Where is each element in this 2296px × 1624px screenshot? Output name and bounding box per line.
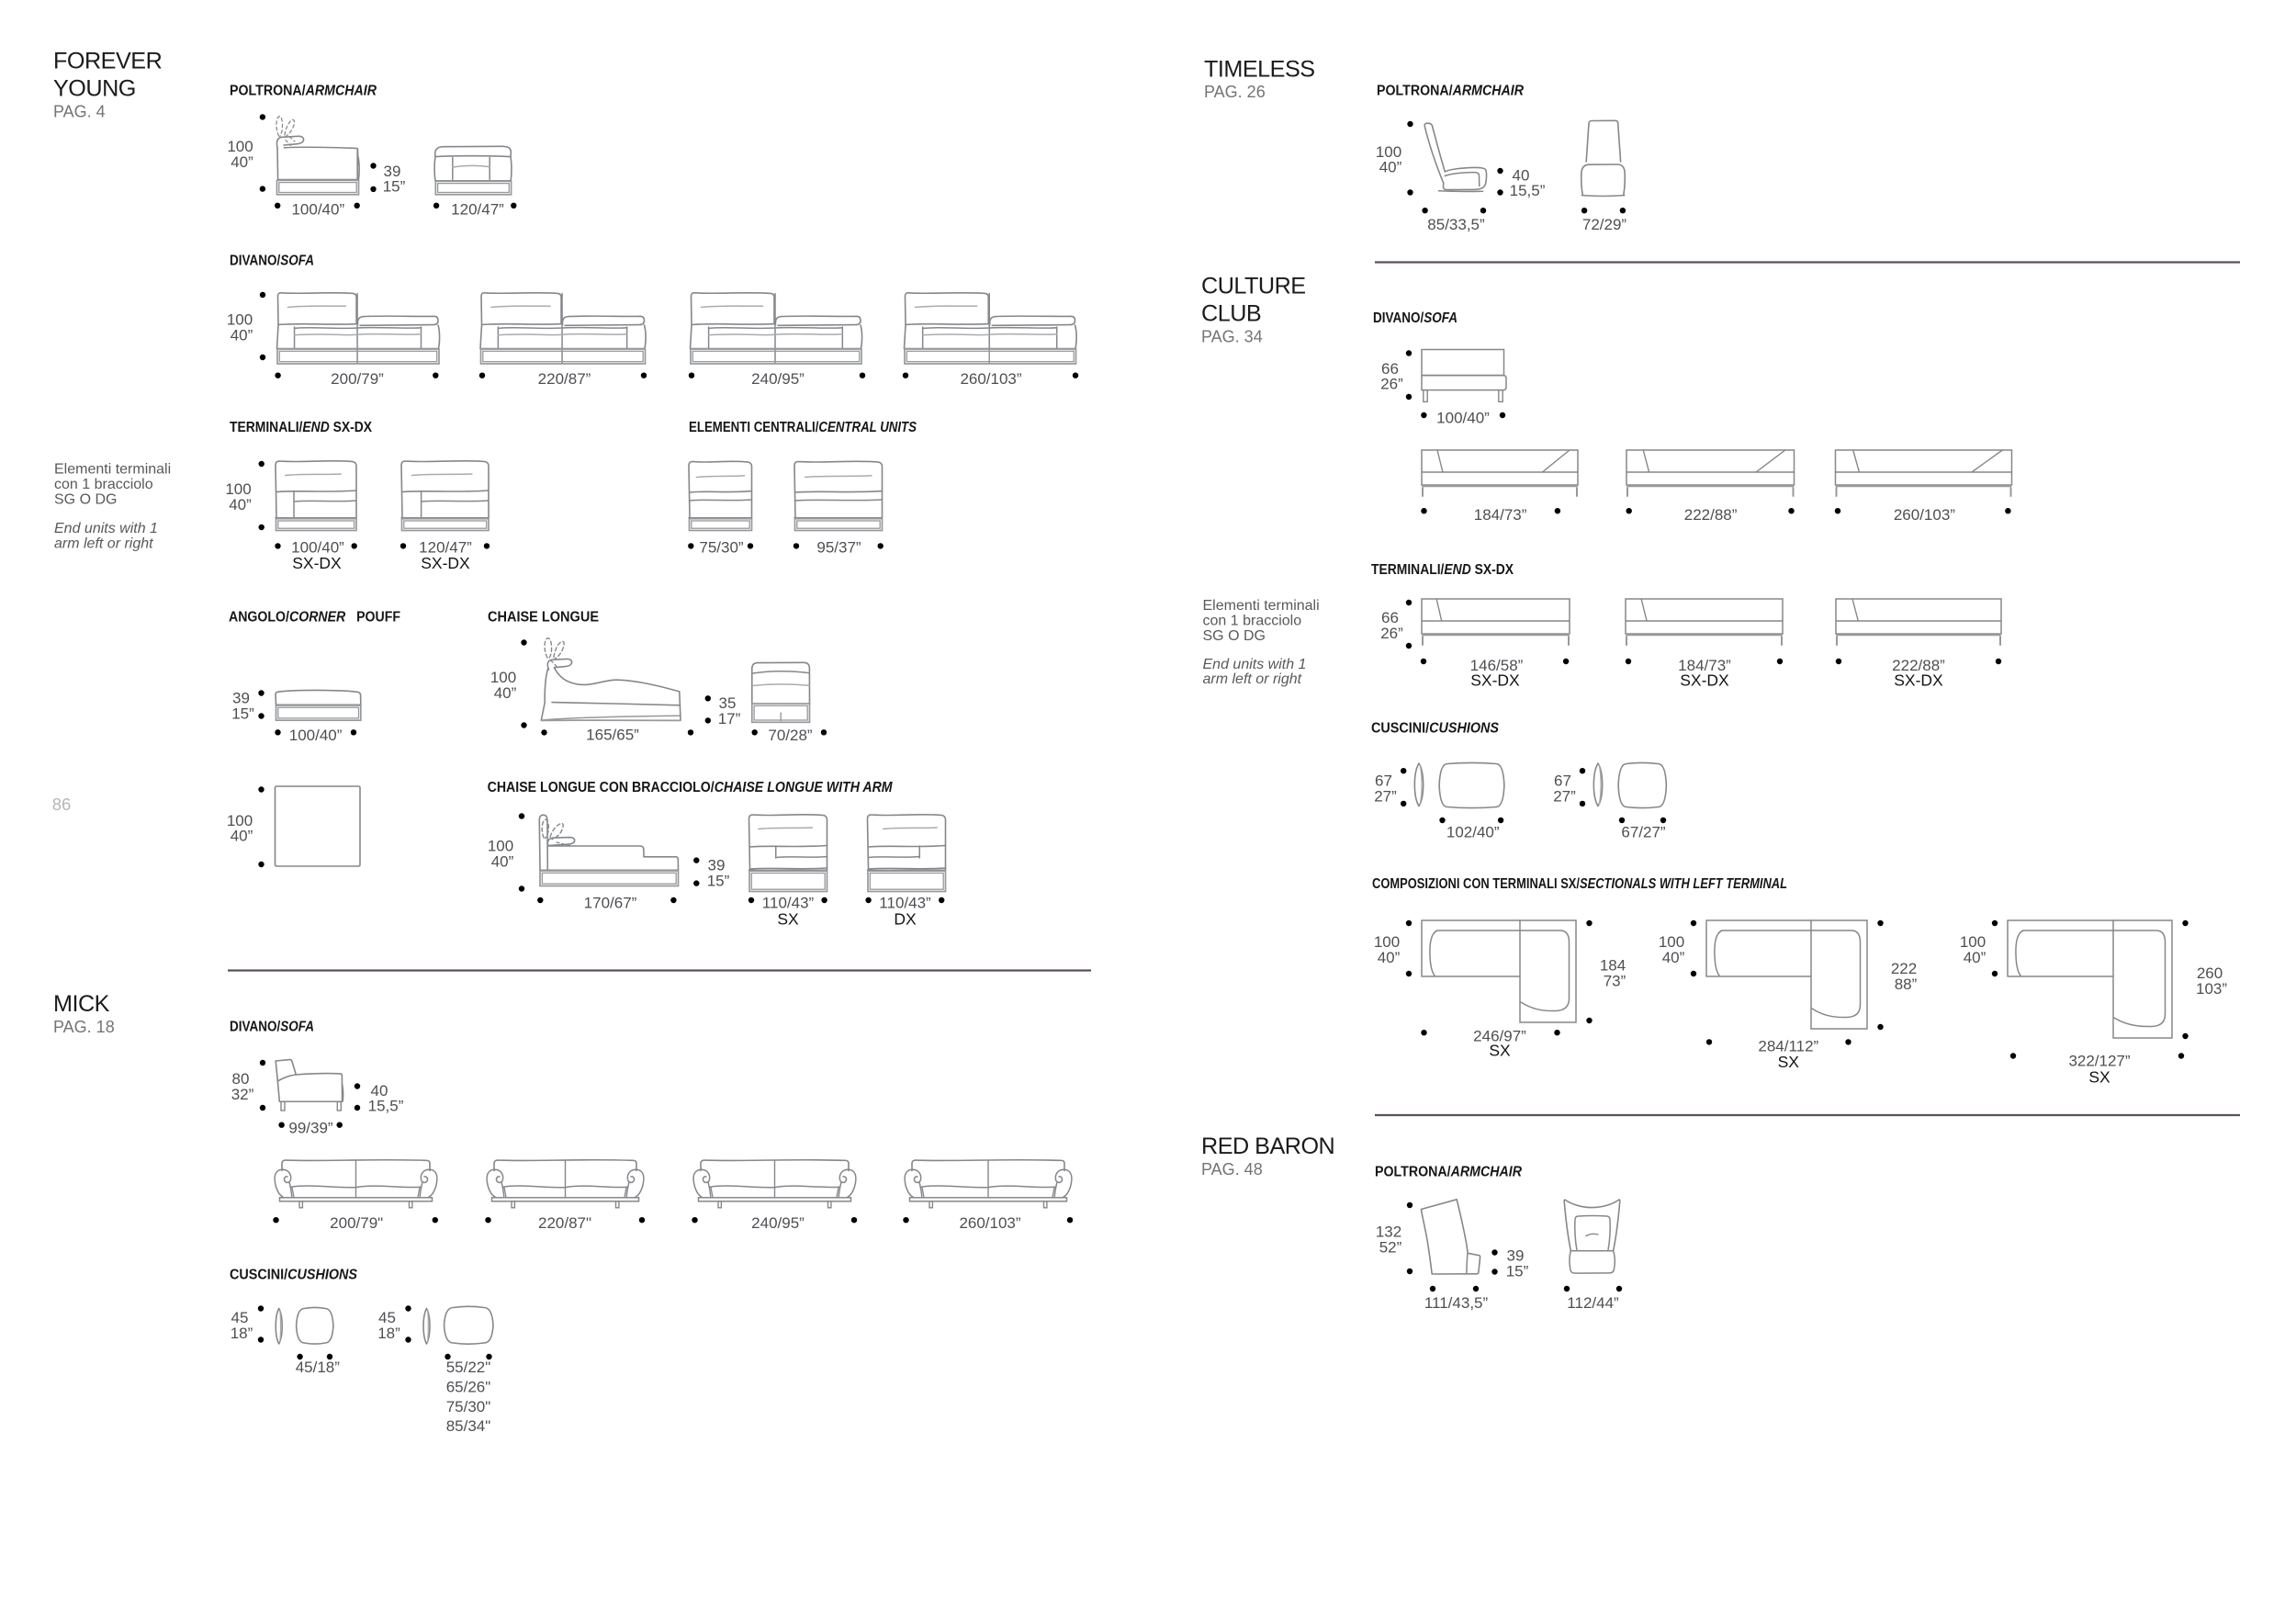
svg-text:POLTRONA/ARMCHAIR: POLTRONA/ARMCHAIR: [1375, 1164, 1522, 1179]
svg-text:260/103”: 260/103”: [959, 1214, 1020, 1232]
svg-text:Elementi terminali: Elementi terminali: [54, 462, 171, 478]
svg-text:40”: 40”: [494, 684, 517, 702]
svg-text:15,5”: 15,5”: [1510, 182, 1546, 199]
svg-text:TERMINALI/END SX-DX: TERMINALI/END SX-DX: [230, 420, 372, 435]
svg-text:TERMINALI/END SX-DX: TERMINALI/END SX-DX: [1371, 562, 1514, 578]
svg-text:DX: DX: [894, 909, 917, 928]
svg-text:72/29”: 72/29”: [1582, 216, 1627, 233]
svg-text:arm left or right: arm left or right: [1203, 671, 1302, 687]
svg-text:ELEMENTI CENTRALI/CENTRAL UNIT: ELEMENTI CENTRALI/CENTRAL UNITS: [689, 420, 917, 435]
svg-text:PAG. 26: PAG. 26: [1204, 83, 1266, 101]
svg-text:YOUNG: YOUNG: [53, 76, 136, 102]
svg-text:27”: 27”: [1553, 787, 1576, 805]
svg-text:55/22": 55/22": [446, 1359, 491, 1376]
svg-text:15”: 15”: [1506, 1262, 1529, 1280]
svg-text:52”: 52”: [1379, 1238, 1402, 1256]
svg-text:Elementi terminali: Elementi terminali: [1203, 598, 1320, 614]
svg-text:184/73”: 184/73”: [1474, 506, 1527, 524]
svg-text:ANGOLO/CORNER POUFF: ANGOLO/CORNER POUFF: [229, 609, 400, 625]
svg-text:18”: 18”: [377, 1325, 400, 1342]
svg-text:75/30”: 75/30”: [699, 539, 744, 557]
svg-text:SX-DX: SX-DX: [1680, 671, 1729, 689]
svg-text:CHAISE LONGUE: CHAISE LONGUE: [488, 609, 599, 625]
svg-text:con 1 bracciolo: con 1 bracciolo: [54, 477, 153, 492]
svg-text:170/67”: 170/67”: [584, 894, 637, 911]
svg-text:75/30": 75/30": [446, 1398, 491, 1415]
svg-text:CUSCINI/CUSHIONS: CUSCINI/CUSHIONS: [1371, 721, 1499, 737]
svg-text:17”: 17”: [718, 710, 741, 727]
svg-text:TIMELESS: TIMELESS: [1204, 57, 1315, 83]
svg-text:SX-DX: SX-DX: [421, 554, 470, 572]
svg-text:SG O DG: SG O DG: [1203, 628, 1266, 644]
svg-text:240/95”: 240/95”: [751, 370, 805, 388]
svg-text:DIVANO/SOFA: DIVANO/SOFA: [230, 254, 314, 269]
svg-text:73”: 73”: [1604, 972, 1626, 989]
svg-text:CLUB: CLUB: [1201, 301, 1261, 327]
svg-text:MICK: MICK: [53, 991, 110, 1017]
svg-text:111/43,5”: 111/43,5”: [1424, 1294, 1489, 1312]
svg-text:SX: SX: [1778, 1053, 1800, 1071]
svg-text:PAG. 34: PAG. 34: [1201, 328, 1263, 346]
svg-text:DIVANO/SOFA: DIVANO/SOFA: [1373, 310, 1458, 326]
svg-text:PAG. 4: PAG. 4: [53, 103, 106, 121]
svg-text:SX: SX: [777, 909, 799, 928]
svg-text:85/34": 85/34": [446, 1417, 491, 1435]
svg-text:26”: 26”: [1380, 625, 1403, 642]
svg-text:DIVANO/SOFA: DIVANO/SOFA: [230, 1019, 314, 1034]
svg-text:220/87": 220/87": [538, 1214, 591, 1232]
svg-text:End units with 1: End units with 1: [1203, 657, 1307, 672]
svg-text:260/103”: 260/103”: [960, 370, 1021, 388]
svg-text:67/27”: 67/27”: [1621, 824, 1666, 841]
svg-text:SX-DX: SX-DX: [1470, 671, 1520, 689]
svg-text:88”: 88”: [1895, 976, 1918, 993]
svg-text:26”: 26”: [1380, 376, 1403, 393]
svg-text:112/44”: 112/44”: [1567, 1294, 1619, 1312]
svg-text:40”: 40”: [491, 852, 514, 870]
svg-text:40”: 40”: [231, 828, 253, 845]
svg-text:SX-DX: SX-DX: [1894, 671, 1943, 689]
svg-text:40”: 40”: [231, 326, 253, 344]
svg-text:70/28”: 70/28”: [768, 727, 813, 744]
svg-text:40”: 40”: [1964, 949, 1986, 966]
svg-text:POLTRONA/ARMCHAIR: POLTRONA/ARMCHAIR: [230, 83, 377, 98]
svg-text:FOREVER: FOREVER: [53, 49, 163, 74]
svg-text:222/88”: 222/88”: [1684, 506, 1738, 524]
svg-text:65/26": 65/26": [446, 1378, 491, 1395]
svg-text:120/47”: 120/47”: [451, 200, 504, 218]
svg-text:40”: 40”: [229, 496, 252, 513]
svg-text:COMPOSIZIONI CON TERMINALI SX/: COMPOSIZIONI CON TERMINALI SX/SECTIONALS…: [1372, 876, 1787, 892]
svg-text:85/33,5”: 85/33,5”: [1427, 216, 1485, 233]
svg-text:40”: 40”: [231, 153, 253, 171]
svg-text:End units with 1: End units with 1: [54, 521, 158, 536]
svg-text:240/95”: 240/95”: [751, 1214, 805, 1232]
svg-text:103”: 103”: [2196, 980, 2227, 998]
svg-text:27”: 27”: [1374, 787, 1397, 805]
svg-text:CULTURE: CULTURE: [1201, 274, 1306, 299]
svg-text:SX: SX: [1489, 1042, 1511, 1060]
svg-text:40”: 40”: [1379, 159, 1402, 176]
svg-text:32”: 32”: [231, 1086, 254, 1103]
svg-text:102/40”: 102/40”: [1446, 824, 1500, 841]
svg-text:100/40”: 100/40”: [289, 727, 343, 744]
svg-text:220/87”: 220/87”: [538, 370, 591, 388]
svg-text:15”: 15”: [383, 178, 406, 196]
svg-text:PAG. 18: PAG. 18: [53, 1018, 115, 1036]
svg-text:SX-DX: SX-DX: [292, 554, 342, 572]
svg-text:POLTRONA/ARMCHAIR: POLTRONA/ARMCHAIR: [1377, 83, 1524, 98]
svg-text:40”: 40”: [1662, 949, 1685, 966]
svg-text:con 1 bracciolo: con 1 bracciolo: [1203, 613, 1302, 628]
svg-text:PAG. 48: PAG. 48: [1201, 1160, 1263, 1179]
svg-text:100/40”: 100/40”: [1436, 410, 1490, 427]
svg-text:99/39”: 99/39”: [288, 1120, 333, 1137]
svg-text:45/18”: 45/18”: [296, 1359, 341, 1376]
svg-text:15”: 15”: [231, 705, 254, 722]
svg-text:15”: 15”: [707, 873, 730, 890]
svg-text:100/40”: 100/40”: [291, 200, 344, 218]
svg-text:200/79”: 200/79”: [331, 370, 384, 388]
svg-text:260/103”: 260/103”: [1894, 506, 1955, 524]
svg-text:15,5”: 15,5”: [368, 1098, 404, 1115]
svg-text:SG O DG: SG O DG: [54, 491, 117, 507]
svg-text:18”: 18”: [231, 1325, 253, 1342]
svg-text:165/65”: 165/65”: [586, 727, 639, 744]
svg-text:arm left or right: arm left or right: [54, 536, 153, 551]
svg-text:CHAISE LONGUE CON BRACCIOLO/CH: CHAISE LONGUE CON BRACCIOLO/CHAISE LONGU…: [488, 780, 894, 795]
svg-text:86: 86: [52, 795, 72, 814]
svg-text:CUSCINI/CUSHIONS: CUSCINI/CUSHIONS: [230, 1267, 357, 1282]
svg-text:SX: SX: [2088, 1067, 2110, 1086]
svg-text:95/37”: 95/37”: [816, 539, 861, 557]
svg-text:200/79": 200/79": [330, 1214, 383, 1232]
svg-text:40”: 40”: [1378, 949, 1401, 966]
svg-text:RED BARON: RED BARON: [1201, 1133, 1334, 1159]
